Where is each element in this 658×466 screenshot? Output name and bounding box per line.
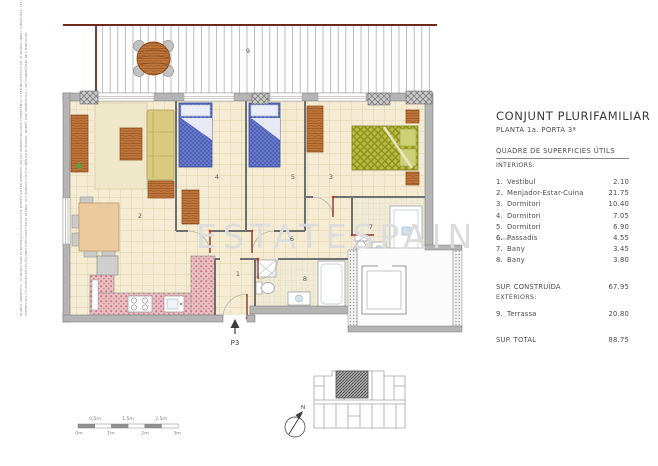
built-area-value: 67.95 (609, 283, 629, 291)
table-row: 9.Terrassa 20.80 (496, 309, 629, 320)
washer-icon (256, 260, 276, 277)
tv-unit-icon (148, 181, 174, 198)
total-area-value: 88.75 (609, 336, 629, 344)
north-arrow-icon: N (285, 405, 305, 437)
svg-text:2m: 2m (141, 431, 149, 437)
entrance-arrow-icon (231, 319, 240, 328)
north-label: N (301, 405, 305, 411)
sofa-icon (147, 110, 174, 180)
bed-icon (249, 103, 280, 167)
wardrobe-icon (307, 106, 323, 152)
table-row: 5.Dormitori 6.90 (496, 222, 629, 233)
toilet-icon (256, 282, 275, 294)
area-value: 3.80 (613, 255, 629, 266)
label-bany8: 8 (303, 275, 307, 283)
interiors-heading: INTERIORS: (496, 162, 629, 169)
margin-disclaimer: PLANOL ORIENTATIU. LA PROMOTORA ES RESER… (19, 20, 28, 316)
area-value: 20.80 (609, 309, 629, 320)
bedroom5-furniture (249, 103, 280, 167)
kitchen-sink-icon (164, 296, 184, 312)
table-row: 4.Dormitori 7.05 (496, 211, 629, 222)
table-row: 6.Passadís 4.55 (496, 233, 629, 244)
table-row: 1.Vestíbul 2.10 (496, 177, 629, 188)
label-bany7: 7 (369, 223, 373, 231)
svg-text:0m: 0m (75, 431, 83, 437)
key-plan-unit-highlight (336, 371, 368, 398)
scale-bar: 0,5m 1,5m 2,5m 0m 1m 2m 3m (75, 416, 181, 437)
dining-table-icon (72, 197, 119, 257)
table-row: 2.Menjador-Estar-Cuina 21.75 (496, 188, 629, 199)
key-plan (314, 371, 405, 428)
area-value: 10.40 (609, 199, 629, 210)
label-dorm4: 4 (215, 173, 219, 181)
project-title: CONJUNT PLURIFAMILIAR (496, 110, 629, 122)
counter-right (191, 256, 215, 315)
area-value: 21.75 (609, 188, 629, 199)
terrace (63, 25, 437, 93)
label-dorm3: 3 (329, 173, 333, 181)
svg-text:2,5m: 2,5m (155, 416, 167, 422)
coffee-table-icon (120, 128, 142, 160)
double-bed-icon (352, 126, 418, 170)
common-core (348, 245, 462, 332)
exteriors-heading: EXTERIORS: (496, 294, 629, 301)
label-dorm5: 5 (291, 173, 295, 181)
label-vestibul: 1 (236, 270, 240, 278)
area-value: 3.45 (613, 244, 629, 255)
area-value: 7.05 (613, 211, 629, 222)
floor-door-subtitle: PLANTA 1a. PORTA 3ª (496, 126, 629, 134)
disclaimer-line2: SUPERFICIES I FUSTERIES DE LES FAÇANES E… (24, 31, 29, 316)
area-value: 6.90 (613, 222, 629, 233)
label-passadis: 6 (290, 235, 294, 243)
fridge-icon (97, 256, 118, 275)
cooktop-icon (128, 296, 152, 312)
area-value: 2.10 (613, 177, 629, 188)
nightstand-icon (406, 172, 419, 185)
plant-icon (76, 163, 82, 169)
areas-table-title: QUADRE DE SUPERFICIES ÚTILS (496, 147, 629, 159)
label-menjador: 2 (138, 212, 142, 220)
bed-icon (179, 103, 212, 167)
info-panel: CONJUNT PLURIFAMILIAR PLANTA 1a. PORTA 3… (496, 110, 629, 344)
watermark: ESTATESPAIN – (196, 217, 517, 256)
entrance-label: P3 (231, 339, 240, 347)
svg-text:1,5m: 1,5m (122, 416, 134, 422)
floorplan-page: { "doc": { "panel": { "title": "CONJUNT … (0, 0, 658, 466)
table-row: 7.Bany 3.45 (496, 244, 629, 255)
table-row: 8.Bany 3.80 (496, 255, 629, 266)
table-row: 3.Dormitori 10.40 (496, 199, 629, 210)
terrace-table-icon (134, 41, 174, 77)
svg-text:1m: 1m (107, 431, 115, 437)
built-area-row: SUP. CONSTRUÏDA 67.95 (496, 283, 629, 291)
label-terrassa: 9 (246, 47, 250, 55)
svg-text:0,5m: 0,5m (89, 416, 101, 422)
svg-text:3m: 3m (173, 431, 181, 437)
total-area-row: SUP. TOTAL 88.75 (496, 336, 629, 344)
elevator-icon (362, 266, 406, 314)
vanity-sink-icon (288, 292, 310, 305)
entrance-marker: P3 (231, 319, 240, 347)
nightstand-icon (406, 110, 419, 123)
interiors-list: 1.Vestíbul 2.10 2.Menjador-Estar-Cuina 2… (496, 177, 629, 267)
bathtub-icon (318, 261, 345, 307)
area-value: 4.55 (613, 233, 629, 244)
